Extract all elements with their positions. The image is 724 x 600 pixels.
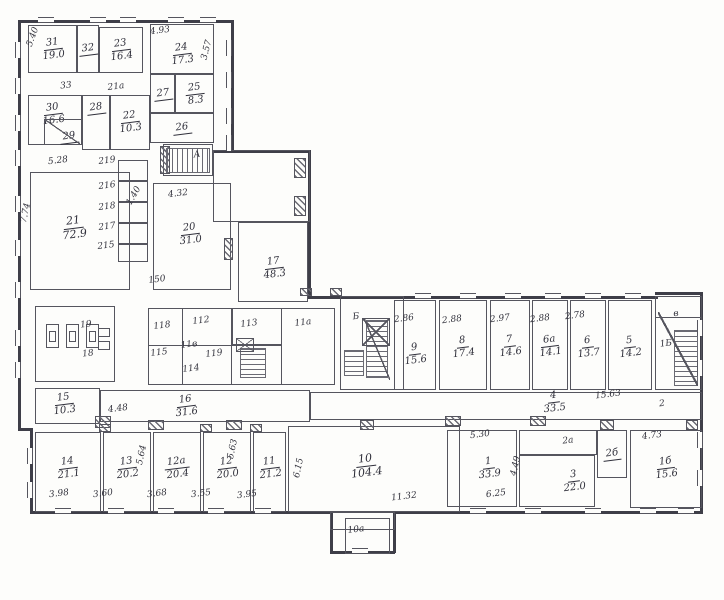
room-4 — [310, 392, 702, 420]
toilet-fixture — [66, 324, 79, 348]
dimension-label: 19 — [80, 319, 93, 330]
room-label-25: 258.3 — [184, 80, 206, 106]
room-number: 26 — [172, 121, 192, 136]
room-number: 28 — [86, 101, 106, 116]
room-label-6а: 6а14.1 — [537, 333, 562, 360]
room-label-15: 1510.3 — [51, 391, 76, 418]
room-label-16: 1631.6 — [173, 393, 198, 420]
dimension-label: 11в — [180, 339, 198, 351]
room-label-32: 32 — [78, 42, 98, 57]
dimension-label: в — [673, 309, 679, 320]
hatch-pier — [294, 196, 306, 216]
room-label-17: 1748.3 — [261, 255, 286, 282]
room-label-24: 2417.3 — [169, 41, 194, 68]
room-label-8: 817.4 — [450, 334, 475, 361]
room-label-9: 915.6 — [402, 341, 427, 368]
room-label-2б: 2б — [602, 447, 622, 462]
room-number: 3 — [566, 468, 580, 482]
stair-diagonal — [44, 119, 80, 144]
room-number: 4 — [546, 389, 560, 403]
room-label-23: 2316.4 — [108, 37, 133, 64]
hatch-pier — [148, 420, 164, 430]
window-marker — [226, 108, 232, 124]
window-marker — [27, 482, 33, 498]
dimension-label: 112 — [192, 315, 210, 327]
window-marker — [15, 282, 21, 298]
window-marker — [120, 17, 136, 23]
window-marker — [697, 432, 703, 448]
dimension-label: 5.28 — [47, 155, 68, 167]
room-label-3: 322.0 — [561, 468, 586, 495]
room-number: 25 — [184, 80, 204, 95]
toilet-bowl-icon — [69, 331, 76, 342]
wall-segment — [655, 292, 703, 295]
dimension-label: 115 — [150, 347, 168, 359]
window-marker — [108, 508, 124, 514]
room-label-1б: 1б15.6 — [653, 455, 678, 482]
room-label-6: 613.7 — [575, 334, 600, 361]
window-marker — [525, 508, 541, 514]
toilet-bowl-icon — [49, 331, 56, 342]
room-label-14: 1421.1 — [55, 455, 80, 482]
room-number: 6 — [580, 334, 594, 348]
dimension-label: 2а — [562, 435, 574, 446]
room-label-22: 2210.3 — [117, 109, 142, 136]
window-marker — [678, 508, 694, 514]
room-16 — [100, 390, 310, 422]
room-label-5: 514.2 — [617, 334, 642, 361]
dimension-label: Б — [352, 312, 360, 323]
wall-segment — [18, 428, 32, 431]
window-marker — [352, 548, 368, 554]
hatch-pier — [600, 420, 614, 430]
plan-box — [519, 430, 597, 455]
hatch-pier — [686, 420, 698, 430]
room-label-1: 133.9 — [476, 455, 501, 482]
stair-flight — [344, 350, 364, 376]
window-marker — [470, 508, 486, 514]
room-number: 8 — [455, 334, 469, 348]
hatch-pier — [226, 420, 242, 430]
room-label-7: 714.6 — [497, 333, 522, 360]
window-marker — [168, 17, 184, 23]
dimension-label: А — [193, 150, 201, 161]
wall-segment — [30, 428, 33, 514]
window-marker — [545, 293, 561, 299]
dimension-label: 33 — [60, 80, 73, 91]
dimension-label: 113 — [240, 318, 258, 330]
dimension-label: 218 — [98, 201, 116, 213]
window-marker — [15, 42, 21, 58]
hatch-pier — [250, 424, 262, 432]
plan-box — [98, 328, 110, 337]
hatch-pier — [360, 420, 374, 430]
window-marker — [27, 448, 33, 464]
window-marker — [90, 17, 106, 23]
window-marker — [226, 72, 232, 88]
window-marker — [15, 115, 21, 131]
window-marker — [697, 470, 703, 486]
window-marker — [15, 330, 21, 346]
hatch-pier — [200, 424, 212, 432]
plan-box — [98, 341, 110, 350]
floor-plan: 3119.0322316.42417.3258.327263016.629282… — [0, 0, 724, 600]
window-marker — [505, 293, 521, 299]
hatch-pier — [300, 288, 312, 296]
stair-flight — [166, 148, 210, 173]
hatch-pier — [224, 238, 233, 260]
room-label-21: 2172.9 — [60, 213, 88, 242]
room-label-20: 2031.0 — [177, 221, 202, 248]
window-marker — [208, 508, 224, 514]
dimension-label: 1Б — [659, 338, 672, 349]
room-label-4: 433.5 — [541, 389, 566, 416]
window-marker — [15, 78, 21, 94]
window-marker — [38, 17, 54, 23]
dimension-label: 219 — [98, 155, 116, 167]
window-marker — [625, 293, 641, 299]
room-label-26: 26 — [172, 121, 192, 136]
room-number: 27 — [152, 86, 172, 101]
dimension-label: 216 — [98, 180, 116, 192]
dimension-label: 215 — [97, 240, 115, 252]
window-marker — [585, 293, 601, 299]
dimension-label: 10а — [347, 524, 365, 536]
dimension-label: 21а — [107, 81, 125, 93]
dimension-label: 118 — [153, 320, 171, 332]
room-number: 32 — [78, 42, 98, 57]
room-number: 9 — [407, 341, 421, 355]
room-area: 8.3 — [185, 93, 205, 107]
room-number: 5 — [622, 334, 636, 348]
hatch-pier — [99, 424, 111, 432]
window-marker — [415, 293, 431, 299]
window-marker — [15, 150, 21, 166]
window-marker — [697, 320, 703, 336]
stair-flight — [240, 348, 266, 378]
toilet-bowl-icon — [89, 331, 96, 342]
window-marker — [255, 508, 271, 514]
hatch-pier — [294, 158, 306, 178]
window-marker — [200, 17, 216, 23]
hatch-pier — [330, 288, 342, 296]
hatch-pier — [160, 146, 170, 174]
window-marker — [226, 40, 232, 56]
dimension-label: 217 — [98, 221, 116, 233]
hatch-pier — [445, 416, 461, 426]
toilet-fixture — [46, 324, 59, 348]
room-label-31: 3119.0 — [40, 36, 65, 63]
dimension-label: 18 — [82, 348, 95, 359]
shaft-cross — [236, 338, 254, 352]
dimension-label: 119 — [205, 348, 223, 360]
window-marker — [697, 360, 703, 376]
window-marker — [158, 508, 174, 514]
room-label-10: 10104.4 — [349, 451, 383, 481]
window-marker — [226, 135, 232, 151]
room-label-28: 28 — [86, 101, 106, 116]
window-marker — [460, 293, 476, 299]
shaft-cross — [362, 318, 390, 346]
window-marker — [640, 508, 656, 514]
window-marker — [585, 508, 601, 514]
window-marker — [15, 196, 21, 212]
dimension-label: 2 — [659, 399, 666, 410]
room-number: 1 — [481, 455, 495, 469]
dimension-label: 150 — [148, 274, 166, 286]
window-marker — [15, 240, 21, 256]
room-number: 7 — [502, 333, 516, 347]
room-number: 2б — [602, 447, 622, 462]
room-label-11: 1121.2 — [257, 455, 282, 482]
window-marker — [55, 508, 71, 514]
dimension-label: 11а — [294, 317, 312, 329]
dimension-label: 114 — [182, 363, 200, 375]
room-label-12а: 12а20.4 — [163, 455, 190, 482]
window-marker — [15, 362, 21, 378]
room-label-27: 27 — [152, 86, 172, 101]
hatch-pier — [530, 416, 546, 426]
